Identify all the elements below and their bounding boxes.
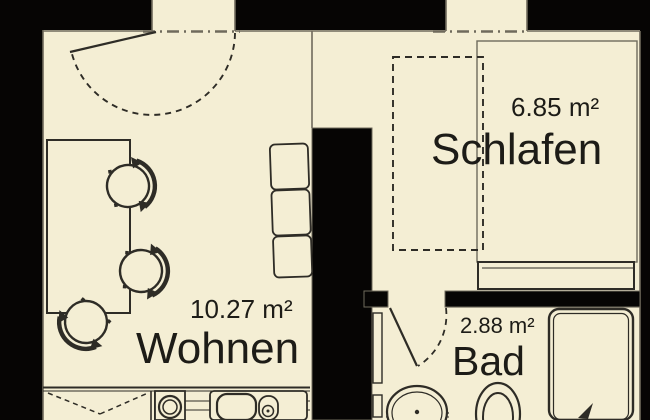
shelf-unit — [270, 143, 313, 277]
wall-bad — [445, 291, 640, 307]
schlafen-area-label: 6.85 m² — [511, 94, 599, 120]
bed — [478, 262, 634, 289]
bad-area-label: 2.88 m² — [460, 315, 535, 337]
schlafen-name-label: Schlafen — [431, 128, 602, 172]
wohnen-area-label: 10.27 m² — [190, 296, 293, 322]
floor-plan-drawing — [0, 0, 650, 420]
wall-center — [312, 128, 372, 420]
wall-bad-stub — [364, 291, 388, 307]
floor-plan: 6.85 m² Schlafen 10.27 m² Wohnen 2.88 m²… — [0, 0, 650, 420]
shower — [549, 309, 633, 420]
dining-table — [47, 140, 130, 313]
bad-name-label: Bad — [452, 341, 525, 382]
radiator — [373, 313, 382, 417]
wohnen-name-label: Wohnen — [136, 327, 299, 371]
kitchen-sink — [210, 391, 307, 420]
